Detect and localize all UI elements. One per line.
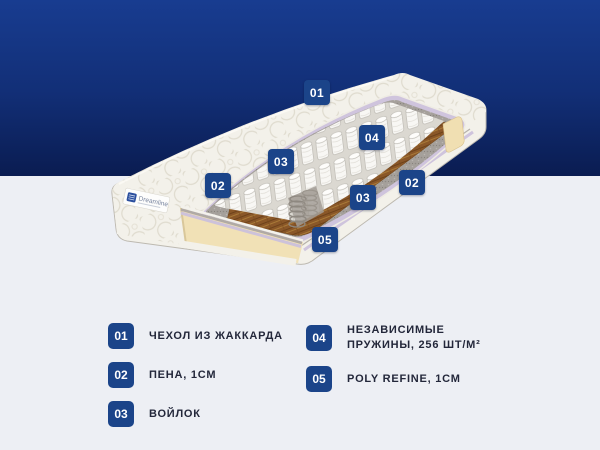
legend-number-badge-04: 04	[306, 325, 332, 351]
legend-item-label: ПЕНА, 1СМ	[149, 368, 216, 383]
marker-04-springs: 04	[359, 125, 385, 150]
marker-03-felt-right: 03	[350, 185, 376, 210]
legend-item-cover: 01 ЧЕХОЛ ИЗ ЖАККАРДА	[108, 323, 306, 349]
legend-item-label: ЧЕХОЛ ИЗ ЖАККАРДА	[149, 329, 283, 344]
marker-05-poly-refine: 05	[312, 227, 338, 252]
legend: 01 ЧЕХОЛ ИЗ ЖАККАРДА 02 ПЕНА, 1СМ 03 ВОЙ…	[108, 323, 508, 440]
legend-column-right: 04 НЕЗАВИСИМЫЕ ПРУЖИНЫ, 256 ШТ/М² 05 POL…	[306, 323, 508, 440]
legend-column-left: 01 ЧЕХОЛ ИЗ ЖАККАРДА 02 ПЕНА, 1СМ 03 ВОЙ…	[108, 323, 306, 440]
legend-item-felt: 03 ВОЙЛОК	[108, 401, 306, 427]
legend-number-badge-03: 03	[108, 401, 134, 427]
legend-item-poly-refine: 05 POLY REFINE, 1СМ	[306, 366, 508, 392]
legend-number-badge-02: 02	[108, 362, 134, 388]
legend-item-springs: 04 НЕЗАВИСИМЫЕ ПРУЖИНЫ, 256 ШТ/М²	[306, 323, 508, 353]
marker-02-foam-right: 02	[399, 170, 425, 195]
marker-01-cover: 01	[304, 80, 330, 105]
legend-item-label: НЕЗАВИСИМЫЕ ПРУЖИНЫ, 256 ШТ/М²	[347, 323, 499, 353]
legend-item-label: POLY REFINE, 1СМ	[347, 372, 461, 387]
legend-number-badge-01: 01	[108, 323, 134, 349]
legend-number-badge-05: 05	[306, 366, 332, 392]
marker-02-foam-left: 02	[205, 173, 231, 198]
marker-03-felt-left: 03	[268, 149, 294, 174]
legend-item-foam: 02 ПЕНА, 1СМ	[108, 362, 306, 388]
mattress-layers-infographic: Dreamline 01 02 03 04 02 03 05 01 ЧЕХОЛ …	[0, 0, 600, 450]
legend-item-label: ВОЙЛОК	[149, 407, 201, 422]
